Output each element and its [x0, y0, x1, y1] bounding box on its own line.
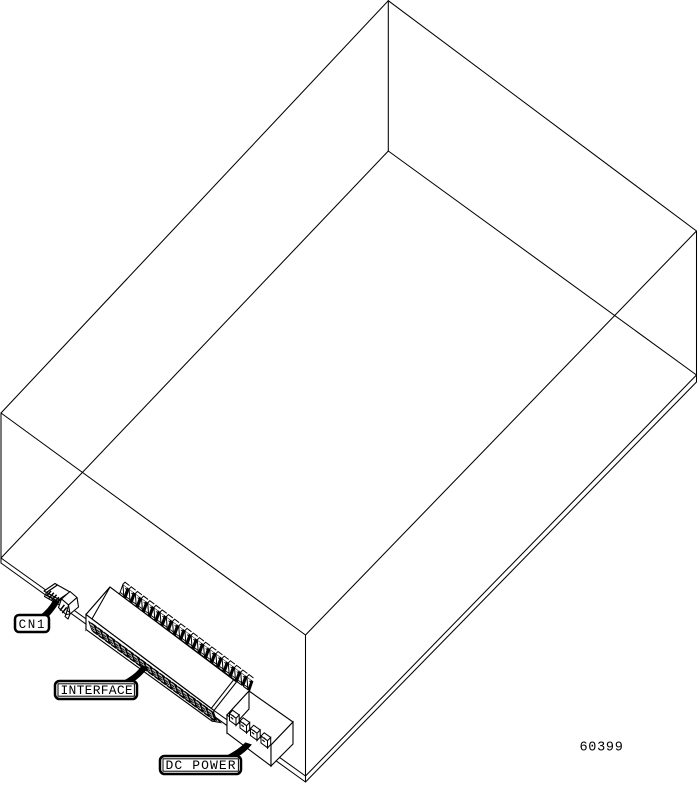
svg-text:60399: 60399 [580, 741, 624, 756]
svg-text:INTERFACE: INTERFACE [61, 683, 133, 698]
svg-text:CN1: CN1 [19, 618, 47, 632]
svg-text:DC POWER: DC POWER [166, 758, 237, 773]
